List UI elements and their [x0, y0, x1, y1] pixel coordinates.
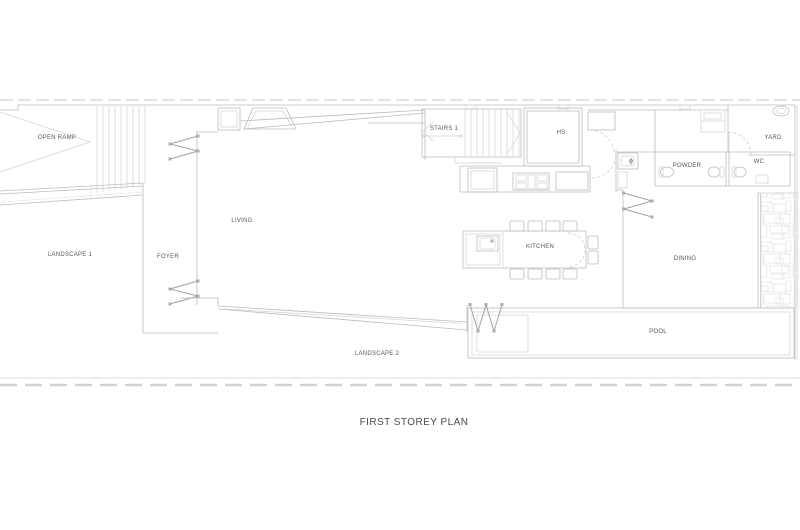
- hall-doors: [588, 110, 728, 192]
- drawing-sheet: OPEN RAMP LANDSCAPE 1 FOYER LIVING STAIR…: [0, 0, 800, 530]
- room-label-wc: WC: [754, 159, 765, 165]
- room-label-landscape2: LANDSCAPE 2: [355, 351, 400, 357]
- living-room: LIVING: [169, 108, 426, 306]
- kitchen-island-table: KITCHEN: [463, 221, 598, 279]
- room-label-powder: POWDER: [673, 163, 702, 169]
- room-label-pool: POOL: [649, 329, 667, 335]
- open-ramp-area: OPEN RAMP: [0, 106, 145, 205]
- stairs-1: STAIRS 1: [422, 109, 521, 163]
- site-boundary: [0, 100, 800, 385]
- landscape2: LANDSCAPE 2: [180, 298, 467, 357]
- yard: YARD: [701, 105, 795, 155]
- room-label-kitchen: KITCHEN: [526, 244, 554, 250]
- household-shelter: HS: [524, 108, 582, 166]
- pool: POOL: [467, 303, 794, 358]
- drawing-title: FIRST STOREY PLAN: [360, 417, 469, 428]
- room-label-yard: YARD: [764, 135, 782, 141]
- kitchen-counter: [460, 166, 590, 192]
- room-label-landscape1: LANDSCAPE 1: [48, 252, 93, 258]
- dining-room: DINING: [616, 190, 798, 308]
- landscape1-foyer: LANDSCAPE 1 FOYER: [48, 183, 218, 333]
- floor-plan: OPEN RAMP LANDSCAPE 1 FOYER LIVING STAIR…: [0, 0, 800, 530]
- room-label-stairs1: STAIRS 1: [430, 126, 459, 132]
- room-label-hs: HS: [557, 130, 566, 136]
- powder-wc: POWDER WC: [616, 152, 790, 186]
- room-label-foyer: FOYER: [157, 254, 179, 260]
- room-label-open-ramp: OPEN RAMP: [38, 135, 76, 141]
- room-label-living: LIVING: [231, 218, 252, 224]
- room-label-dining: DINING: [674, 256, 697, 262]
